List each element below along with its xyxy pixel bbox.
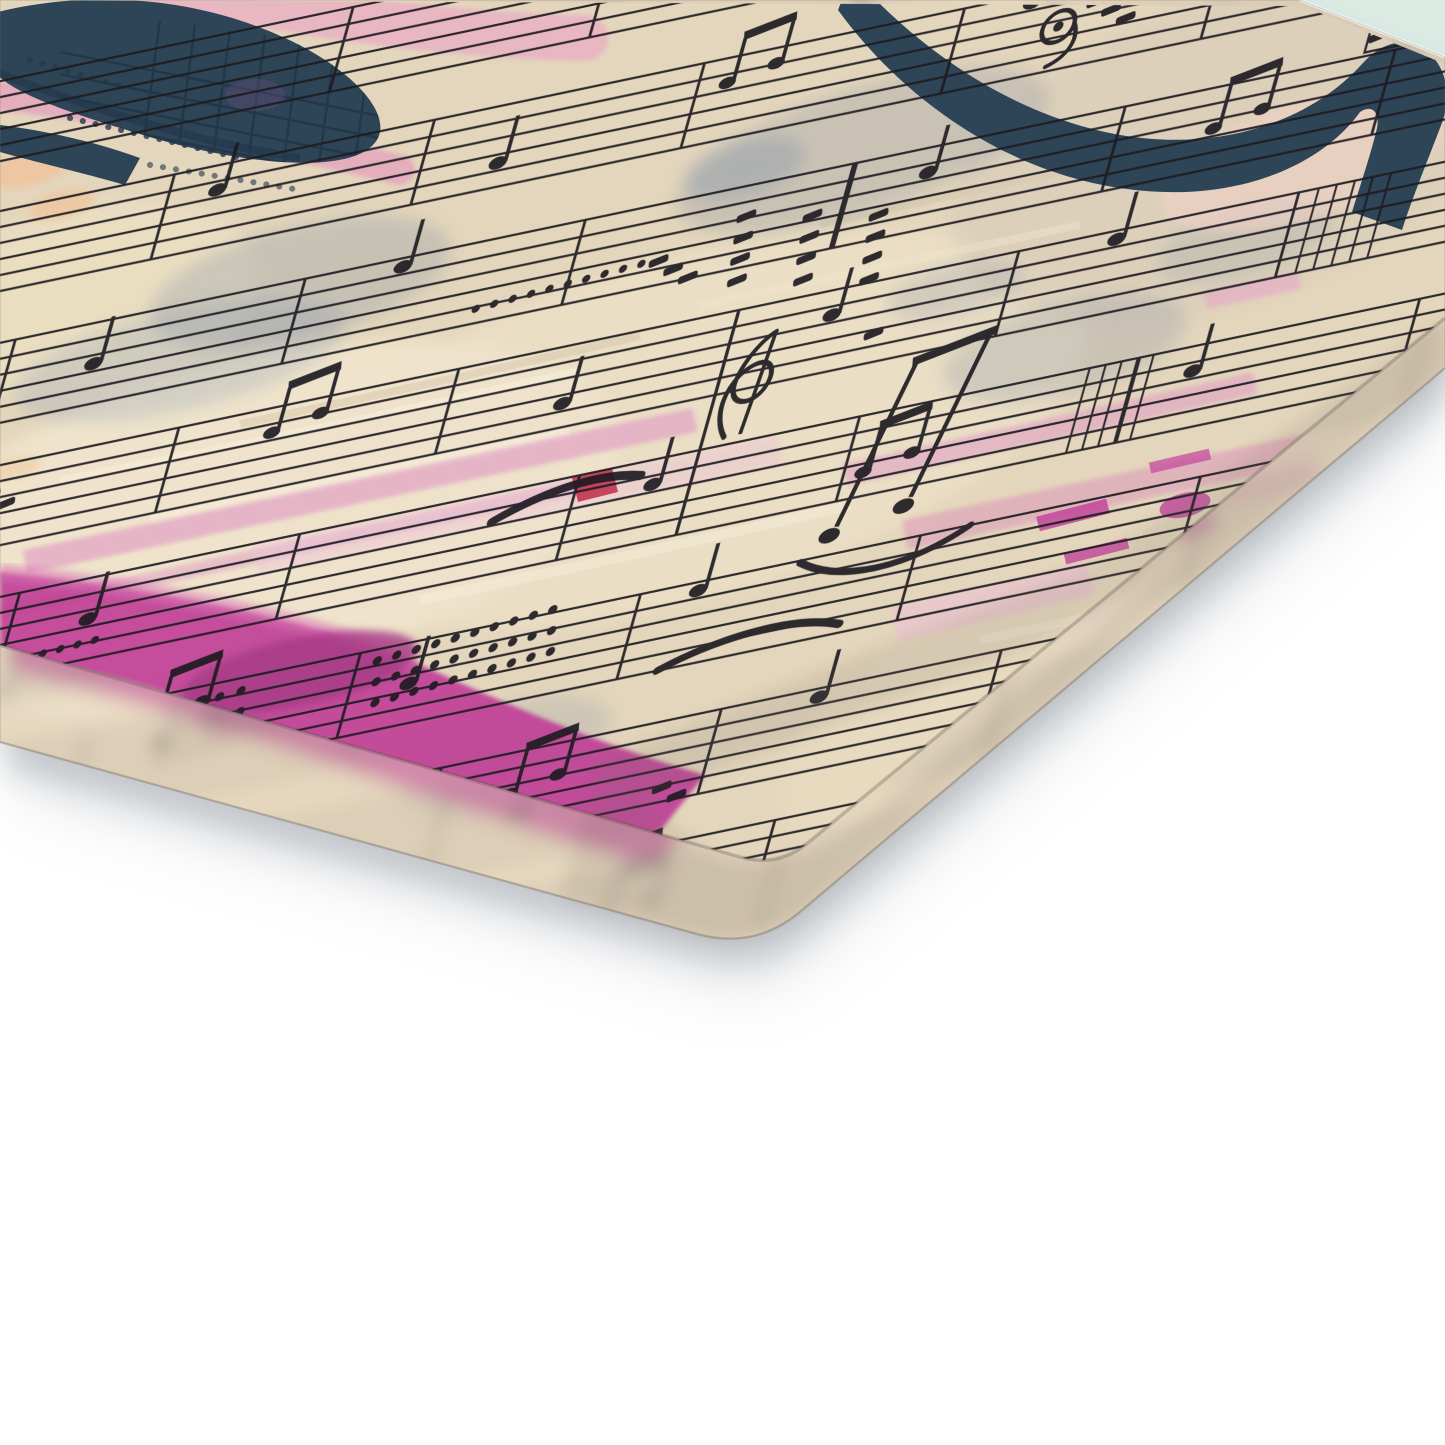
product-photo-stage — [0, 0, 1445, 1445]
product-photo — [0, 0, 1445, 1445]
